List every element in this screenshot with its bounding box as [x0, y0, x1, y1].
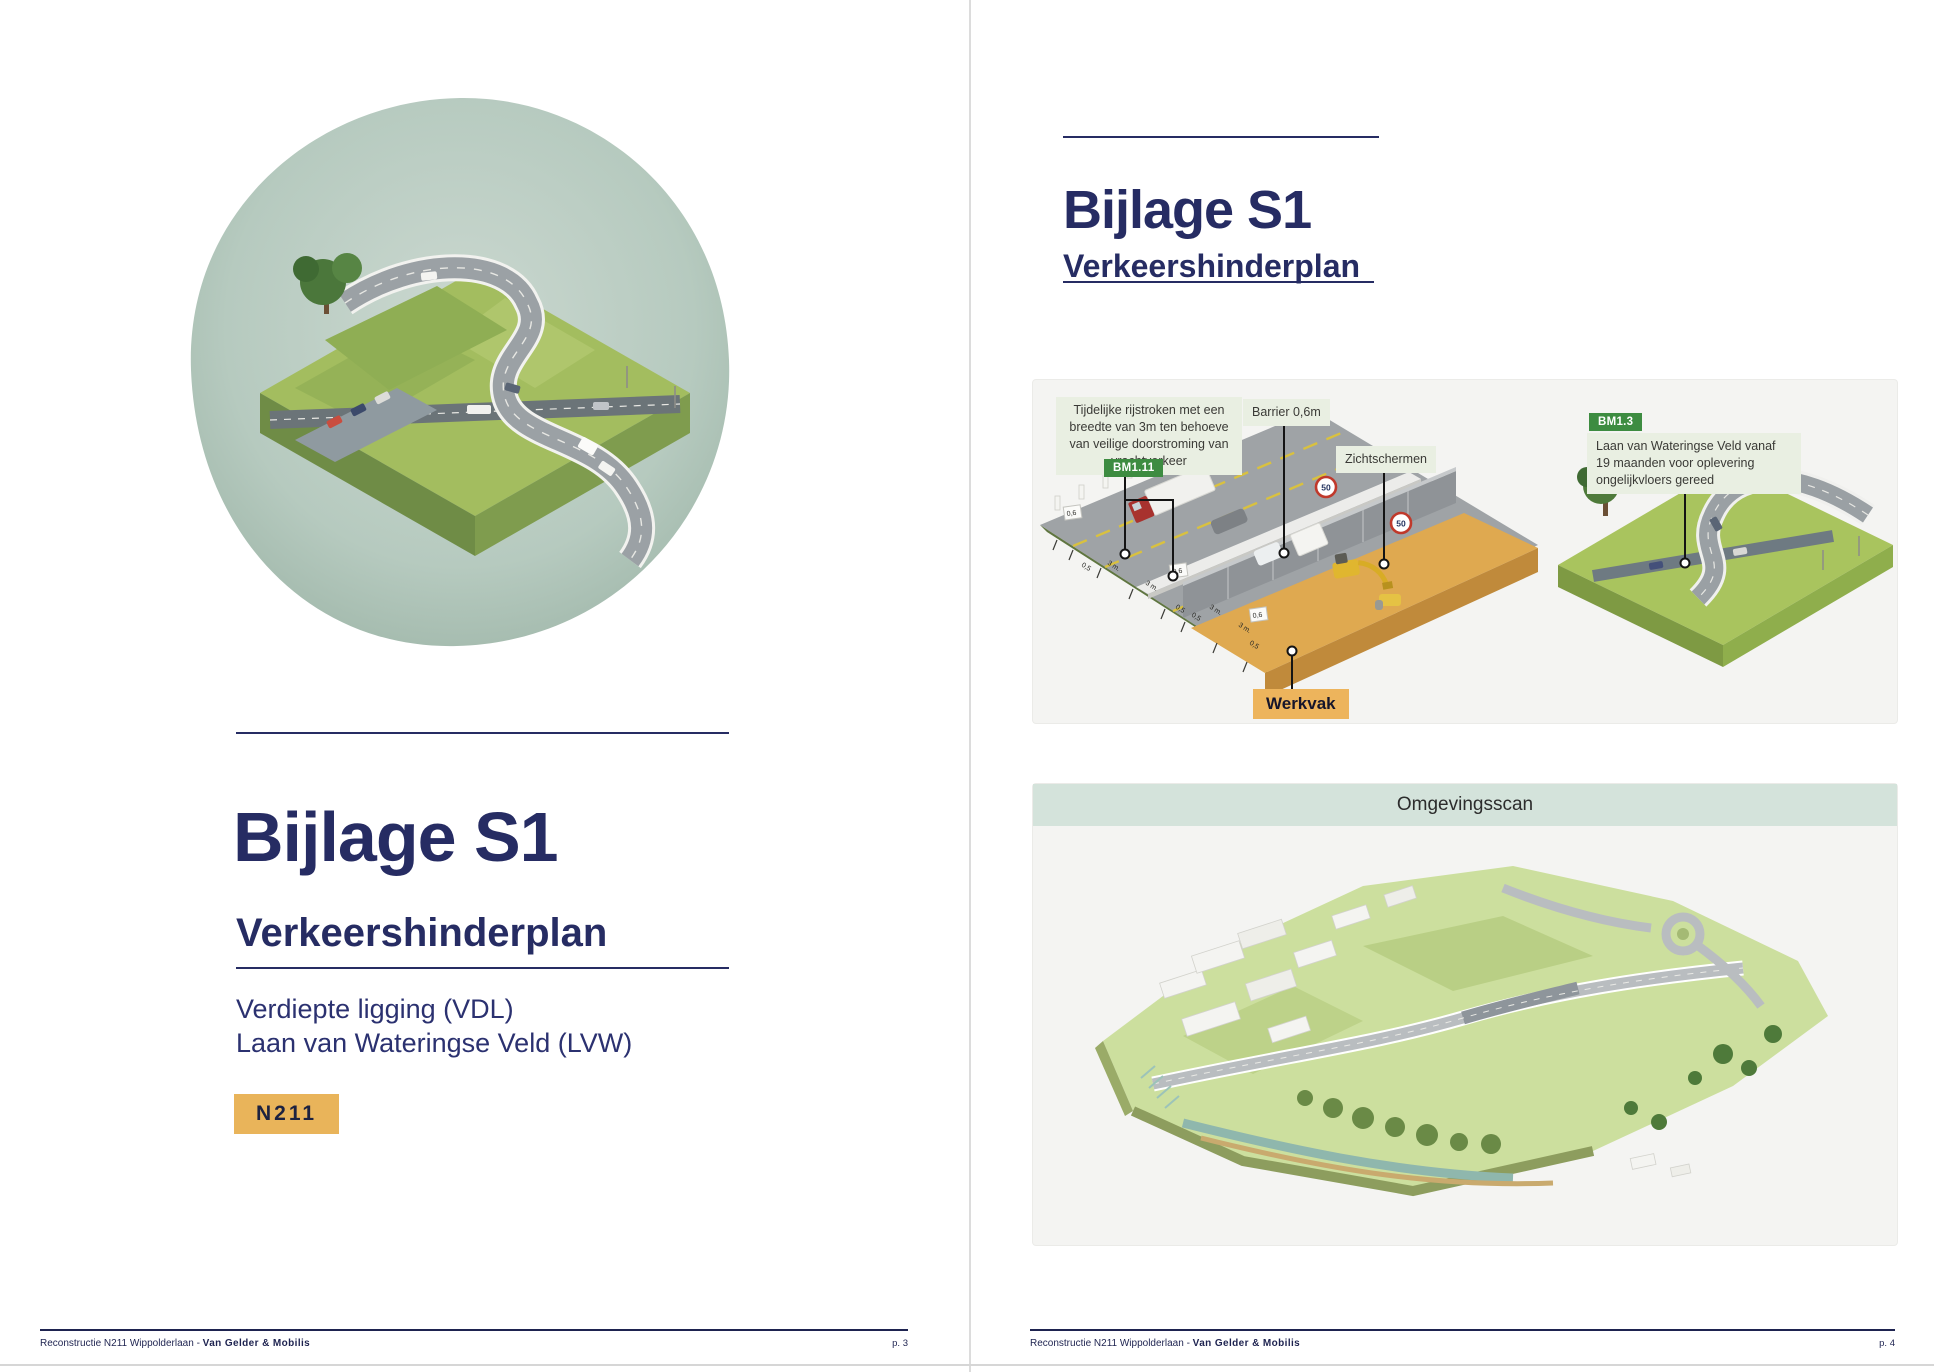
bm1-3-line: ongelijkvloers gereed [1596, 472, 1792, 489]
svg-text:50: 50 [1396, 519, 1406, 529]
left-footer-rule [40, 1329, 908, 1331]
omgevingsscan-illustration [1033, 826, 1897, 1245]
left-footer-text: Reconstructie N211 Wippolderlaan - Van G… [40, 1338, 310, 1349]
speed-limit-50-sign: 50 [1316, 477, 1336, 497]
right-page-subtitle: Verkeershinderplan [1063, 249, 1360, 284]
svg-text:0,5: 0,5 [1080, 562, 1092, 573]
right-footer-text: Reconstructie N211 Wippolderlaan - Van G… [1030, 1338, 1300, 1349]
page-divider [969, 0, 971, 1372]
svg-text:0,6: 0,6 [1066, 510, 1077, 518]
left-footer: Reconstructie N211 Wippolderlaan - Van G… [40, 1338, 908, 1349]
window-bottom-edge [0, 1364, 1934, 1366]
bm1-3-line: Laan van Wateringse Veld vanaf [1596, 438, 1792, 455]
bm1-3-label: Laan van Wateringse Veld vanaf 19 maande… [1587, 433, 1801, 494]
bm1-3-line: 19 maanden voor oplevering [1596, 455, 1792, 472]
svg-text:50: 50 [1321, 483, 1331, 493]
left-title-rule-bottom [236, 967, 729, 969]
speed-limit-50-sign: 50 [1391, 513, 1411, 533]
right-title-rule-bottom [1063, 281, 1374, 283]
svg-text:0,6: 0,6 [1252, 612, 1263, 620]
right-footer-project: Reconstructie N211 Wippolderlaan - [1030, 1338, 1193, 1349]
body-line-1: Verdiepte ligging (VDL) [236, 992, 632, 1026]
right-footer-rule [1030, 1329, 1895, 1331]
left-page-number: p. 3 [892, 1338, 908, 1349]
left-footer-project: Reconstructie N211 Wippolderlaan - [40, 1338, 203, 1349]
left-title-rule-top [236, 732, 729, 734]
temporary-lanes-line: van veilige doorstroming van [1065, 436, 1233, 453]
omgevingsscan-panel: Omgevingsscan [1032, 783, 1898, 1246]
body-line-2: Laan van Wateringse Veld (LVW) [236, 1026, 632, 1060]
werkvak-label: Werkvak [1253, 689, 1349, 719]
left-page-subtitle: Verkeershinderplan [236, 911, 607, 955]
right-page-title: Bijlage S1 [1063, 182, 1311, 239]
right-footer: Reconstructie N211 Wippolderlaan - Van G… [1030, 1338, 1895, 1349]
left-body-text: Verdiepte ligging (VDL) Laan van Waterin… [236, 992, 632, 1060]
bm1-3-badge: BM1.3 [1589, 413, 1642, 431]
left-footer-company: Van Gelder & Mobilis [203, 1338, 310, 1349]
traffic-measures-panel: 0,6 0,5 3 m. 3 m. 0,6 0,5 0,5 3 m. 3 m. … [1032, 379, 1898, 724]
omgevingsscan-header: Omgevingsscan [1033, 784, 1897, 826]
right-page-number: p. 4 [1879, 1338, 1895, 1349]
bm1-11-badge: BM1.11 [1104, 459, 1163, 477]
temporary-lanes-line: Tijdelijke rijstroken met een [1065, 402, 1233, 419]
n211-road-badge: N211 [234, 1094, 339, 1134]
zichtschermen-label: Zichtschermen [1336, 446, 1436, 473]
temporary-lanes-line: breedte van 3m ten behoeve [1065, 419, 1233, 436]
barrier-label: Barrier 0,6m [1243, 399, 1330, 426]
document-spread: Bijlage S1 Verkeershinderplan Verdiepte … [0, 0, 1934, 1372]
left-page-title: Bijlage S1 [233, 801, 558, 875]
right-footer-company: Van Gelder & Mobilis [1193, 1338, 1300, 1349]
sheds [1630, 1154, 1691, 1177]
cover-illustration [175, 88, 745, 658]
right-title-rule-top [1063, 136, 1379, 138]
